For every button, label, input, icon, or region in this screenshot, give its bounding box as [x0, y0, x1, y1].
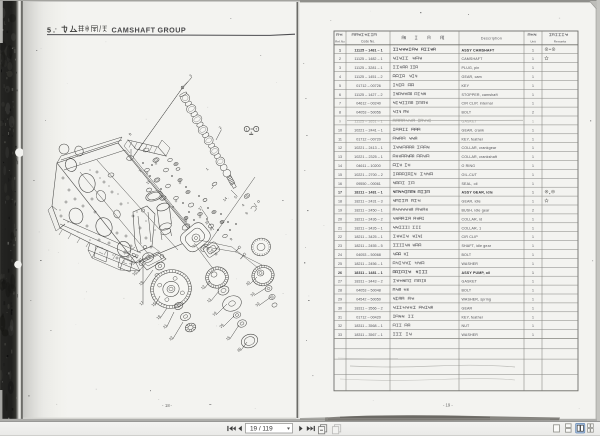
- svg-text:10: 10: [338, 128, 342, 132]
- svg-text:7: 7: [255, 128, 257, 132]
- svg-text:.: .: [53, 25, 55, 34]
- svg-text:GROUP: GROUP: [158, 25, 187, 34]
- svg-text:18311 – 1481 – 1: 18311 – 1481 – 1: [354, 271, 383, 275]
- svg-text:11125 – 1451 – 2: 11125 – 1451 – 2: [354, 75, 382, 79]
- svg-text:GEAR, idle: GEAR, idle: [462, 200, 481, 204]
- svg-text:1: 1: [532, 289, 534, 293]
- svg-text:CAMSHAFT: CAMSHAFT: [112, 25, 156, 34]
- svg-text:04611 – 10200: 04611 – 10200: [356, 164, 380, 168]
- svg-text:10221 – 2700 – 2: 10221 – 2700 – 2: [354, 173, 383, 177]
- svg-text:1: 1: [532, 164, 534, 168]
- svg-text:11125 – 1651 – 1: 11125 – 1651 – 1: [354, 120, 382, 124]
- svg-text:13: 13: [338, 155, 342, 159]
- svg-text:1: 1: [532, 57, 534, 61]
- svg-text:9: 9: [339, 120, 341, 124]
- svg-text:1: 1: [532, 253, 534, 257]
- svg-text:10221 – 2413 – 1: 10221 – 2413 – 1: [354, 146, 383, 150]
- svg-text:17: 17: [338, 191, 342, 195]
- svg-text:CIR CLIP, internal: CIR CLIP, internal: [462, 102, 493, 106]
- svg-text:1: 1: [532, 306, 534, 310]
- svg-text:1: 1: [532, 93, 534, 97]
- svg-text:18211 – 1481 – 1: 18211 – 1481 – 1: [354, 191, 383, 195]
- svg-text:25: 25: [338, 262, 342, 266]
- svg-text:1: 1: [532, 200, 534, 204]
- svg-text:WASHER: WASHER: [462, 333, 479, 337]
- svg-text:STOPPER, camshaft: STOPPER, camshaft: [462, 93, 498, 97]
- svg-text:8: 8: [339, 111, 341, 115]
- svg-text:SHAFT, idle gear: SHAFT, idle gear: [462, 244, 492, 248]
- svg-text:27: 27: [338, 280, 342, 284]
- svg-text:18311 – 3567 – 1: 18311 – 3567 – 1: [354, 333, 382, 337]
- svg-text:01712 – 00720: 01712 – 00720: [356, 137, 381, 141]
- svg-text:11125 – 1481 – 1: 11125 – 1481 – 1: [354, 48, 382, 52]
- svg-text:04053 – 50048: 04053 – 50048: [356, 289, 381, 293]
- svg-text:1: 1: [532, 226, 534, 230]
- svg-text:01712 – 00726: 01712 – 00726: [356, 84, 381, 88]
- svg-text:Remarks: Remarks: [554, 40, 567, 44]
- svg-text:NUT: NUT: [462, 324, 470, 328]
- svg-text:18211 – 3426 – 1: 18211 – 3426 – 1: [354, 226, 382, 230]
- svg-text:10221 – 2325 – 1: 10221 – 2325 – 1: [354, 155, 383, 159]
- svg-text:Ref.No: Ref.No: [335, 40, 345, 44]
- svg-text:KEY: KEY: [462, 84, 470, 88]
- svg-text:10221 – 2441 – 1: 10221 – 2441 – 1: [354, 128, 383, 132]
- svg-text:18211 – 2431 – 3: 18211 – 2431 – 3: [354, 200, 382, 204]
- svg-text:2: 2: [532, 209, 534, 213]
- svg-text:29: 29: [338, 298, 342, 302]
- svg-text:1: 1: [532, 244, 534, 248]
- svg-text:SEAL, oil: SEAL, oil: [462, 182, 478, 186]
- svg-text:1: 1: [532, 315, 534, 319]
- svg-text:2: 2: [339, 57, 341, 61]
- svg-text:1: 1: [532, 280, 534, 284]
- svg-text:COLLAR, id: COLLAR, id: [462, 217, 483, 221]
- svg-text:4: 4: [339, 75, 341, 79]
- svg-text:6: 6: [339, 93, 341, 97]
- svg-text:COLLAR, crankshaft: COLLAR, crankshaft: [462, 155, 498, 159]
- svg-text:11: 11: [338, 137, 342, 141]
- svg-text:1: 1: [532, 324, 534, 328]
- svg-text:30: 30: [338, 306, 342, 310]
- svg-text:24: 24: [338, 253, 342, 257]
- svg-text:1: 1: [532, 155, 534, 159]
- svg-text:1: 1: [532, 102, 534, 106]
- svg-text:18311 – 3566 – 2: 18311 – 3566 – 2: [354, 306, 382, 310]
- svg-text:32: 32: [338, 324, 342, 328]
- svg-text:18211 – 2450 – 1: 18211 – 2450 – 1: [354, 209, 382, 213]
- svg-text:11125 – 1427 – 2: 11125 – 1427 – 2: [354, 93, 382, 97]
- svg-text:04053 – 50056: 04053 – 50056: [356, 111, 381, 115]
- svg-text:09550 – 00061: 09550 – 00061: [356, 182, 381, 186]
- svg-text:BOLT: BOLT: [462, 111, 472, 115]
- svg-text:GASKET: GASKET: [462, 280, 478, 284]
- svg-text:28: 28: [338, 289, 342, 293]
- svg-text:1: 1: [532, 120, 534, 124]
- svg-text:26: 26: [338, 271, 342, 275]
- svg-text:15: 15: [338, 173, 342, 177]
- svg-text:16: 16: [338, 182, 342, 186]
- svg-text:BOLT: BOLT: [462, 253, 472, 257]
- svg-text:7: 7: [339, 102, 341, 106]
- svg-text:1: 1: [532, 75, 534, 79]
- svg-text:11125 – 3281 – 1: 11125 – 3281 – 1: [354, 66, 382, 70]
- svg-text:18311 – 3568 – 1: 18311 – 3568 – 1: [354, 324, 382, 328]
- svg-text:11125 – 1482 – 1: 11125 – 1482 – 1: [354, 57, 382, 61]
- svg-text:1: 1: [532, 217, 534, 221]
- svg-text:18311 – 3443 – 2: 18311 – 3443 – 2: [354, 280, 382, 284]
- svg-text:1: 1: [532, 173, 534, 177]
- svg-text:2: 2: [532, 111, 534, 115]
- svg-text:COLLAR, crankgear: COLLAR, crankgear: [462, 146, 498, 150]
- svg-text:Code No.: Code No.: [361, 40, 375, 44]
- svg-text:CIR CLIP: CIR CLIP: [462, 235, 479, 239]
- svg-text:1: 1: [532, 137, 534, 141]
- svg-text:BOLT: BOLT: [462, 289, 472, 293]
- svg-text:1: 1: [532, 84, 534, 88]
- svg-text:KEY, feather: KEY, feather: [462, 137, 484, 141]
- svg-text:COLLAR, 1: COLLAR, 1: [462, 226, 482, 230]
- svg-text:04542 – 50050: 04542 – 50050: [356, 298, 381, 302]
- svg-text:OIL-CUT: OIL-CUT: [462, 173, 478, 177]
- svg-text:1: 1: [532, 66, 534, 70]
- svg-text:5: 5: [339, 84, 341, 88]
- svg-text:1: 1: [532, 128, 534, 132]
- svg-text:18211 – 2436 – 2: 18211 – 2436 – 2: [354, 217, 382, 221]
- svg-text:BUSH, idle gear: BUSH, idle gear: [462, 209, 491, 213]
- svg-text:20: 20: [338, 217, 342, 221]
- svg-text:1: 1: [532, 271, 534, 275]
- svg-text:19: 19: [338, 209, 342, 213]
- svg-text:ASSY CAMSHAFT: ASSY CAMSHAFT: [462, 48, 495, 52]
- svg-text:14: 14: [338, 164, 342, 168]
- svg-text:5: 5: [47, 25, 51, 34]
- svg-text:18211 – 2456 – 1: 18211 – 2456 – 1: [354, 262, 382, 266]
- svg-text:1: 1: [532, 146, 534, 150]
- svg-text:04053 – 50068: 04053 – 50068: [356, 253, 381, 257]
- svg-text:19 / 119: 19 / 119: [250, 426, 273, 433]
- svg-text:18211 – 3425 – 1: 18211 – 3425 – 1: [354, 235, 382, 239]
- svg-text:ASSY GEAR, idle: ASSY GEAR, idle: [462, 191, 494, 195]
- svg-text:1: 1: [532, 182, 534, 186]
- svg-text:1: 1: [532, 48, 534, 52]
- svg-text:GEAR: GEAR: [462, 306, 473, 310]
- svg-text:GEAR, cam: GEAR, cam: [462, 75, 482, 79]
- svg-text:3: 3: [339, 66, 341, 70]
- svg-text:12: 12: [338, 146, 342, 150]
- svg-text:WASHER: WASHER: [462, 262, 479, 266]
- svg-text:- 19 -: - 19 -: [443, 403, 453, 408]
- svg-text:1: 1: [532, 191, 534, 195]
- svg-text:33: 33: [338, 333, 342, 337]
- svg-text:ASSY PUMP, oil: ASSY PUMP, oil: [462, 271, 491, 275]
- svg-text:18: 18: [338, 200, 342, 204]
- svg-text:04612 – 00240: 04612 – 00240: [356, 102, 381, 106]
- svg-text:01712 – 00420: 01712 – 00420: [356, 315, 381, 319]
- svg-text:1: 1: [532, 262, 534, 266]
- svg-text:22: 22: [338, 235, 342, 239]
- svg-text:31: 31: [338, 315, 342, 319]
- svg-text:18211 – 2455 – 5: 18211 – 2455 – 5: [354, 244, 382, 248]
- svg-text:Unit: Unit: [530, 40, 536, 44]
- svg-text:O RING: O RING: [462, 164, 476, 168]
- svg-text:1: 1: [532, 235, 534, 239]
- svg-text:WASHER, spring: WASHER, spring: [462, 298, 492, 302]
- svg-text:1: 1: [246, 128, 248, 132]
- svg-text:CAMSHAFT: CAMSHAFT: [462, 57, 484, 61]
- svg-text:1: 1: [532, 333, 534, 337]
- svg-text:23: 23: [338, 244, 342, 248]
- svg-text:GEAR, crank: GEAR, crank: [462, 128, 485, 132]
- svg-text:Description: Description: [481, 37, 502, 41]
- svg-text:1: 1: [339, 48, 341, 52]
- svg-text:KEY, feather: KEY, feather: [462, 315, 484, 319]
- svg-text:1: 1: [532, 298, 534, 302]
- svg-text:PLUG, pin: PLUG, pin: [462, 66, 480, 70]
- svg-text:21: 21: [338, 226, 342, 230]
